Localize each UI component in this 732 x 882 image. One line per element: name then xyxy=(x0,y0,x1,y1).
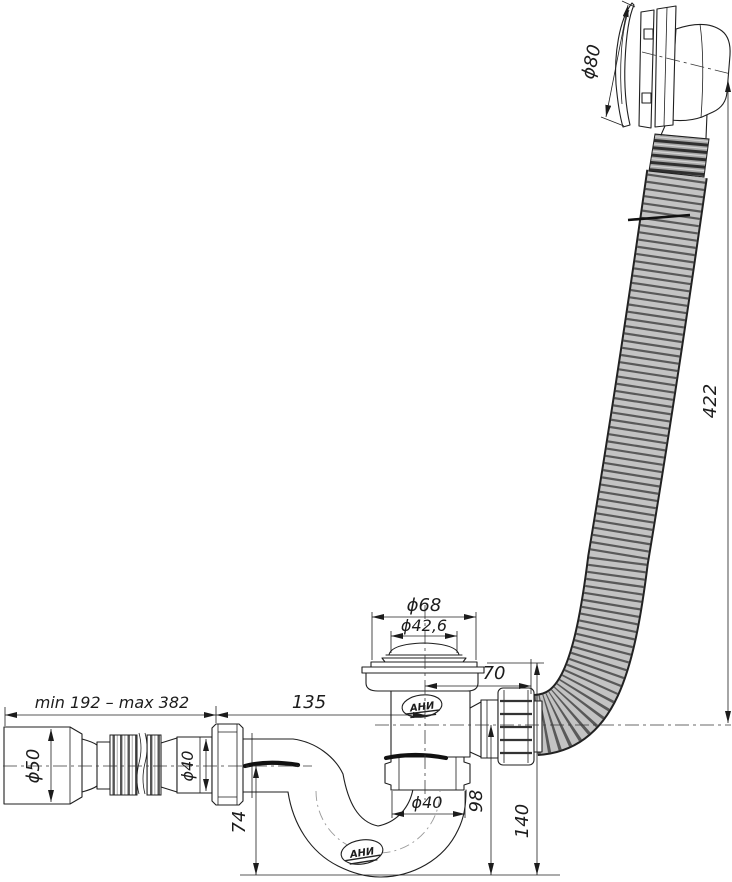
drain-flange-lower xyxy=(362,667,484,673)
overflow-clip-bottom xyxy=(642,93,651,103)
overflow-clip-top xyxy=(644,29,653,39)
corrugation-section-2 xyxy=(147,735,161,795)
siphon-drawing: АНИ АНИ xyxy=(0,0,732,882)
dimension-nut-diameter: ϕ40 xyxy=(412,793,443,812)
corrugation-section-1 xyxy=(110,735,137,795)
drain-flange-upper xyxy=(371,662,477,667)
dimension-offset-70: 70 xyxy=(483,663,506,684)
overflow-threaded-outlet xyxy=(649,134,709,177)
side-outlet xyxy=(481,700,498,758)
hose-union-ring xyxy=(534,701,542,752)
overflow-body xyxy=(670,24,730,120)
technical-drawing-page: АНИ АНИ xyxy=(0,0,732,882)
dimension-hose-length: 422 xyxy=(700,384,721,418)
dimension-flex-range: min 192 – max 382 xyxy=(35,693,189,712)
dimension-trap-length: 135 xyxy=(292,692,326,713)
dimension-flange-diameter: ϕ68 xyxy=(407,595,442,616)
dimension-height-98: 98 xyxy=(466,790,487,813)
valve-housing xyxy=(366,673,478,691)
dimension-height-74: 74 xyxy=(229,811,250,834)
dimension-cuff-diameter: ϕ50 xyxy=(23,749,44,784)
overflow-flange-mid xyxy=(639,10,654,128)
dimension-height-140: 140 xyxy=(512,804,533,838)
pipe-neck xyxy=(97,742,110,789)
dimension-pipe-diameter: ϕ40 xyxy=(178,751,197,782)
dimension-cap-diameter: ϕ42,6 xyxy=(401,616,447,635)
trap-inlet-nut xyxy=(212,724,243,805)
trap-union-nut xyxy=(385,757,470,790)
pipe-taper xyxy=(161,738,177,792)
